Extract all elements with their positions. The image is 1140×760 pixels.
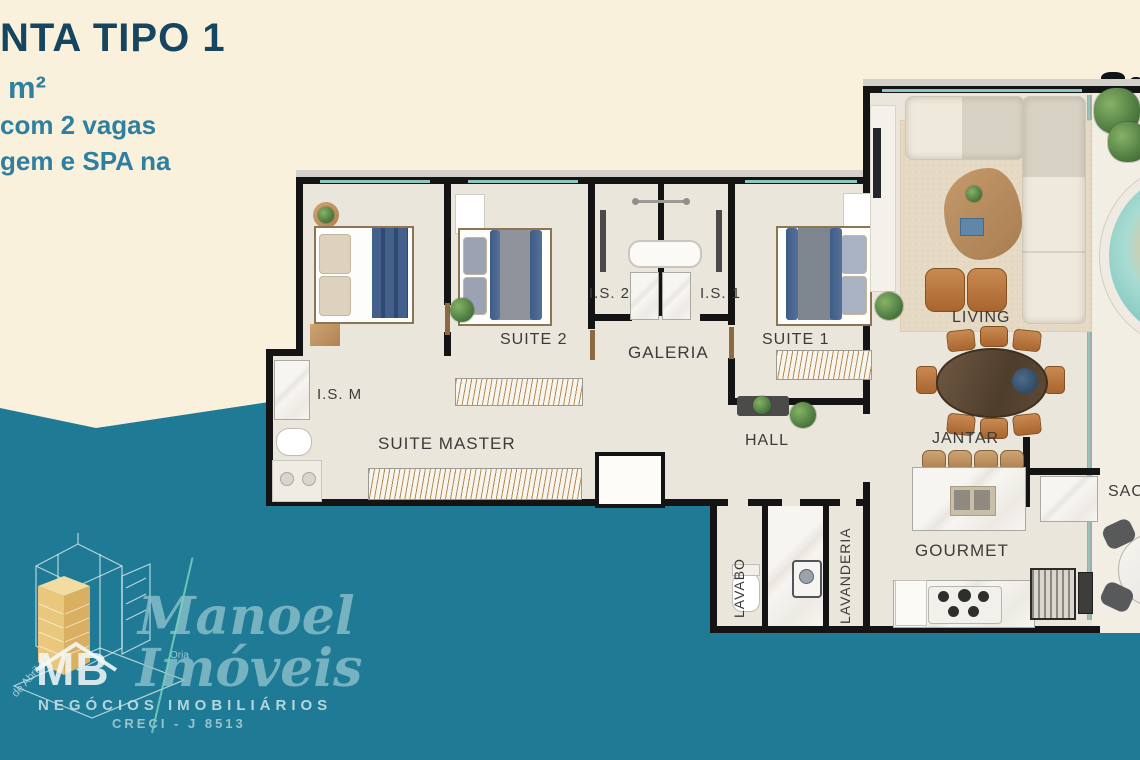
service-panel bbox=[1078, 572, 1093, 614]
window-glass bbox=[320, 180, 430, 183]
dining-chair bbox=[916, 366, 937, 394]
centerpiece-bowl bbox=[1012, 368, 1038, 394]
area-unit-text: m² bbox=[8, 70, 46, 106]
wardrobe-suite-1 bbox=[776, 350, 872, 380]
armchair bbox=[967, 268, 1007, 312]
dining-chair bbox=[1012, 413, 1042, 437]
shower-drain bbox=[280, 472, 294, 486]
burner bbox=[958, 589, 971, 602]
blanket-drape bbox=[786, 228, 798, 320]
burner bbox=[948, 606, 959, 617]
storage-box bbox=[595, 452, 665, 508]
label-sacada: SAC bbox=[1108, 483, 1140, 501]
plant bbox=[875, 292, 903, 320]
logo-monogram: MB bbox=[36, 642, 110, 696]
wall bbox=[710, 499, 728, 506]
wall bbox=[444, 332, 451, 356]
wall bbox=[588, 177, 595, 329]
wall-texture bbox=[863, 79, 1140, 86]
page-title: NTA TIPO 1 bbox=[0, 16, 226, 61]
burner bbox=[938, 591, 949, 602]
washer-door bbox=[799, 569, 814, 584]
door-leaf bbox=[729, 327, 734, 359]
floor-plan-page: NTA TIPO 1 m² com 2 vagas gem e SPA na bbox=[0, 0, 1140, 760]
dining-chair bbox=[1012, 329, 1042, 353]
pillow bbox=[841, 276, 867, 315]
sink-basin bbox=[954, 490, 970, 510]
wall bbox=[863, 499, 870, 633]
window-glass bbox=[468, 180, 578, 183]
logo-small-label: Oria bbox=[170, 650, 189, 661]
armchair bbox=[925, 268, 965, 312]
logo-creci: CRECI - J 8513 bbox=[112, 716, 246, 731]
logo-tagline: NEGÓCIOS IMOBILIÁRIOS bbox=[38, 697, 332, 714]
tv bbox=[873, 128, 881, 198]
bed-suite-1 bbox=[776, 226, 872, 326]
burner bbox=[978, 591, 989, 602]
bench bbox=[310, 324, 340, 346]
label-suite-master: SUITE MASTER bbox=[378, 435, 516, 454]
label-living: LIVING bbox=[952, 309, 1010, 327]
wall bbox=[296, 177, 303, 356]
sofa-right bbox=[1022, 96, 1086, 324]
wall bbox=[1023, 468, 1100, 475]
burner bbox=[968, 606, 979, 617]
blanket bbox=[498, 230, 532, 320]
label-lavanderia: LAVANDERIA bbox=[838, 502, 853, 624]
label-gourmet: GOURMET bbox=[915, 542, 1009, 561]
wall bbox=[748, 499, 782, 506]
wardrobe-suite-master bbox=[455, 378, 583, 406]
wall bbox=[856, 499, 870, 506]
pillow bbox=[319, 276, 351, 316]
label-galeria: GALERIA bbox=[628, 344, 709, 363]
label-suite-2: SUITE 2 bbox=[500, 331, 567, 349]
pillow bbox=[463, 237, 487, 275]
blanket-drape bbox=[530, 230, 542, 320]
wall bbox=[710, 499, 717, 633]
bathtub bbox=[628, 240, 702, 268]
plant bbox=[318, 207, 334, 223]
blanket bbox=[798, 228, 832, 320]
wall-texture bbox=[296, 170, 872, 177]
label-lavabo: LAVABO bbox=[732, 508, 747, 618]
plant bbox=[753, 396, 771, 414]
wall bbox=[444, 177, 451, 305]
service-grille bbox=[1030, 568, 1076, 620]
label-hall: HALL bbox=[745, 432, 789, 450]
wall bbox=[588, 314, 632, 321]
wall bbox=[728, 177, 735, 325]
wall bbox=[863, 86, 870, 184]
window-glass bbox=[745, 180, 857, 183]
plant bbox=[966, 186, 982, 202]
shower-head bbox=[683, 198, 690, 205]
shower-rail bbox=[634, 200, 688, 203]
blanket-drape bbox=[830, 228, 842, 320]
label-jantar: JANTAR bbox=[932, 430, 999, 448]
label-is-1: I.S. 1 bbox=[700, 286, 741, 303]
vanity-cabinet bbox=[600, 210, 606, 272]
blanket-drape bbox=[490, 230, 500, 320]
label-is-m: I.S. M bbox=[317, 387, 362, 404]
shower-stall bbox=[662, 272, 691, 320]
plant bbox=[790, 402, 816, 428]
header-line-3: gem e SPA na bbox=[0, 146, 171, 177]
kitchen-cabinet bbox=[895, 580, 927, 626]
side-counter bbox=[1040, 476, 1098, 522]
coffee-table bbox=[944, 168, 1022, 260]
label-suite-1: SUITE 1 bbox=[762, 331, 829, 349]
toilet bbox=[276, 428, 312, 456]
door-leaf bbox=[590, 330, 595, 360]
sink-basin bbox=[974, 490, 990, 510]
vanity-cabinet bbox=[716, 210, 722, 272]
label-is-2: I.S. 2 bbox=[589, 286, 630, 303]
table-book bbox=[960, 218, 984, 236]
wardrobe-suite-master bbox=[368, 468, 582, 500]
dining-chair bbox=[980, 326, 1008, 347]
plant bbox=[1108, 122, 1140, 162]
blanket bbox=[372, 228, 408, 318]
pillow bbox=[841, 235, 867, 274]
shower-stall bbox=[630, 272, 659, 320]
bed-suite-master bbox=[314, 226, 414, 324]
shower-drain bbox=[302, 472, 316, 486]
wall bbox=[823, 506, 829, 626]
plant bbox=[450, 298, 474, 322]
pillow bbox=[319, 234, 351, 274]
shower-head bbox=[632, 198, 639, 205]
header-line-2: com 2 vagas bbox=[0, 110, 156, 141]
vanity bbox=[274, 360, 310, 420]
wall bbox=[800, 499, 840, 506]
dining-chair bbox=[946, 329, 976, 353]
wall bbox=[863, 398, 870, 414]
window-glass bbox=[882, 89, 1082, 92]
sofa-top bbox=[905, 96, 1025, 160]
